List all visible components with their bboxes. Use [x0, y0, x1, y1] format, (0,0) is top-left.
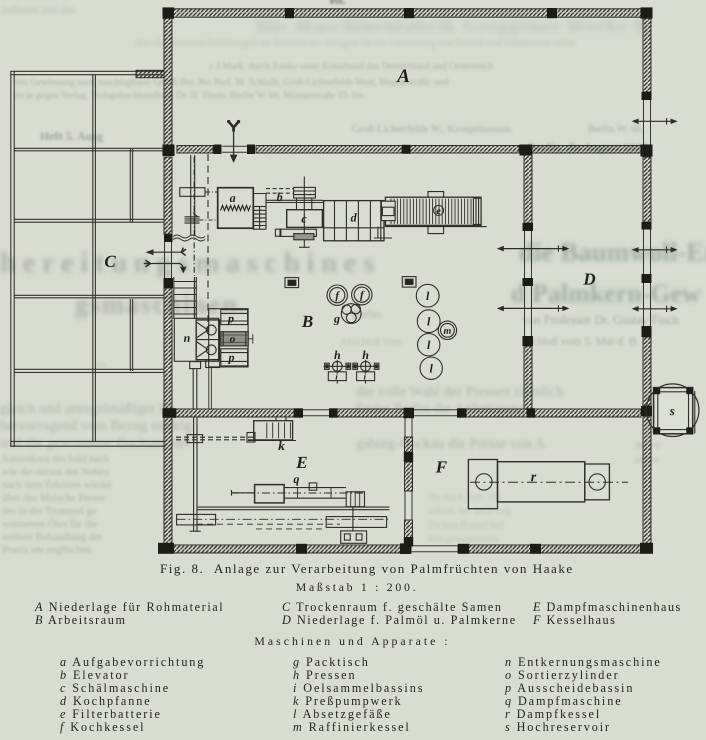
- svg-text:h: h: [362, 348, 369, 362]
- svg-text:o: o: [230, 333, 236, 345]
- svg-text:q: q: [293, 472, 299, 486]
- svg-text:f: f: [335, 290, 340, 302]
- svg-text:h: h: [334, 348, 341, 362]
- svg-text:b: b: [277, 190, 283, 204]
- svg-text:E: E: [295, 453, 307, 472]
- svg-text:s: s: [669, 403, 675, 418]
- svg-text:l: l: [430, 362, 434, 376]
- svg-text:A: A: [396, 66, 410, 87]
- svg-text:p: p: [227, 350, 234, 364]
- svg-text:l: l: [426, 289, 430, 303]
- svg-text:i: i: [364, 372, 367, 382]
- svg-text:p: p: [227, 311, 234, 325]
- svg-text:e: e: [436, 206, 441, 217]
- svg-text:a: a: [230, 191, 236, 205]
- svg-text:m: m: [444, 326, 452, 337]
- svg-text:c: c: [301, 211, 307, 225]
- svg-text:C: C: [104, 252, 116, 271]
- svg-text:f: f: [360, 290, 365, 302]
- svg-text:d: d: [351, 211, 358, 225]
- svg-text:l: l: [427, 315, 431, 329]
- svg-text:F: F: [435, 458, 448, 477]
- svg-text:D: D: [582, 270, 595, 289]
- svg-text:r: r: [531, 470, 537, 485]
- svg-text:B: B: [301, 312, 313, 331]
- svg-text:g: g: [333, 311, 340, 325]
- svg-text:k: k: [278, 438, 285, 453]
- svg-text:n: n: [184, 331, 191, 345]
- svg-text:l: l: [427, 338, 431, 352]
